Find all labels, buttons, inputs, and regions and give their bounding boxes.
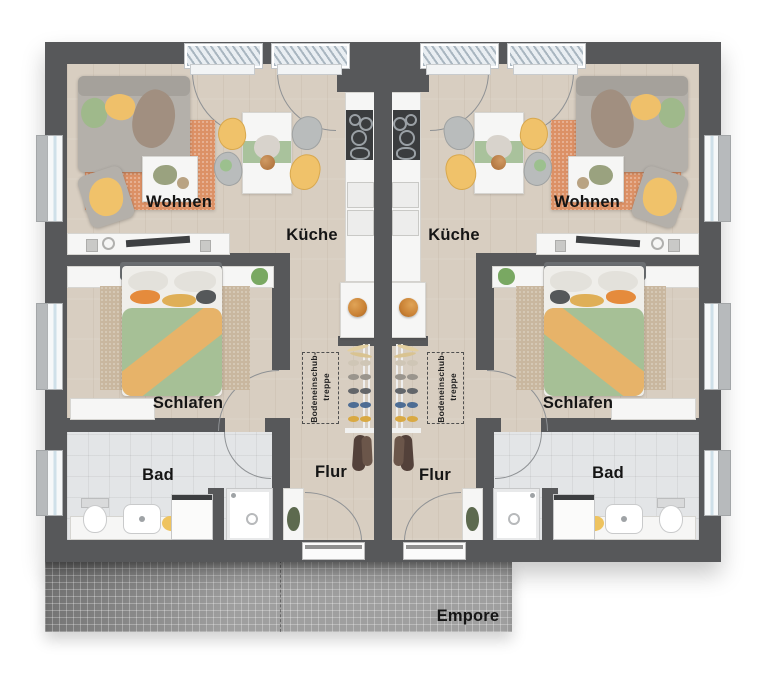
window [47, 135, 63, 222]
faucet [621, 516, 627, 522]
window-sill [718, 303, 731, 390]
decor-object [102, 237, 115, 250]
shoes [360, 388, 371, 394]
tv [126, 236, 190, 247]
double-bed [544, 266, 644, 396]
toilet [659, 505, 683, 533]
toilet [83, 505, 107, 533]
washbasin [605, 504, 643, 534]
shoes [407, 388, 418, 394]
double-bed [122, 266, 222, 396]
entry-door [403, 542, 466, 560]
room-label-flur-right: Flur [405, 466, 465, 485]
kitchen-sink-cabinet [347, 182, 374, 208]
room-label-bad-left: Bad [128, 466, 188, 485]
bedroom-side-wall [272, 253, 290, 370]
hanging-coat [393, 436, 405, 466]
tv-sideboard [536, 233, 699, 255]
loft-ladder-label-left: Bodeneinschub- treppe [302, 352, 337, 422]
entry-door-leaf [305, 545, 362, 549]
pillow [128, 271, 168, 292]
duvet-stripe [122, 308, 222, 396]
roof-window-sill [513, 64, 578, 75]
pillow-mustard [570, 294, 604, 307]
empore-seam-line [280, 560, 281, 632]
shower-drain [246, 513, 258, 525]
pillow-mustard [162, 294, 196, 307]
shoes [348, 402, 359, 408]
duvet-stripe [544, 308, 644, 396]
shoes [407, 360, 418, 366]
entry-deco-panel [283, 488, 304, 540]
pillow [174, 271, 216, 292]
shoes [407, 416, 418, 422]
cushion-green [79, 96, 109, 130]
cushion-green [657, 96, 687, 130]
potted-plant [498, 268, 515, 285]
speaker [200, 240, 211, 252]
loft-ladder-label-line1: Bodeneinschub- [436, 352, 446, 423]
washing-machine [171, 494, 213, 540]
pillow-charcoal [196, 290, 216, 304]
pillow-orange [606, 290, 636, 304]
bathroom-top-wall [541, 418, 699, 432]
room-label-schlafen-right: Schlafen [538, 394, 618, 413]
shoes [360, 416, 371, 422]
window [47, 303, 63, 390]
shoes [360, 402, 371, 408]
entry-plant [466, 507, 479, 531]
decor-mint [219, 158, 234, 173]
closet [70, 398, 155, 420]
shoes [360, 374, 371, 380]
tv [576, 236, 640, 247]
cooktop [346, 110, 373, 160]
roof-window-sill [426, 64, 491, 75]
shoes [395, 416, 406, 422]
shoes [395, 374, 406, 380]
burner-icon [396, 147, 416, 160]
burner-icon [351, 130, 367, 146]
window [47, 450, 63, 516]
table-vase [577, 177, 589, 189]
entry-plant [287, 507, 300, 531]
decor-object [651, 237, 664, 250]
shower-head [231, 493, 236, 498]
duvet [122, 308, 222, 396]
pillow-orange [130, 290, 160, 304]
speaker [86, 239, 98, 252]
burner-icon [399, 130, 415, 146]
pillow [598, 271, 638, 292]
shower [493, 488, 540, 540]
kitchen-sink-cabinet [392, 182, 419, 208]
shoe-shelf [392, 428, 421, 433]
window-sill [718, 450, 731, 516]
burner-icon [393, 117, 407, 131]
room-label-wohnen-left: Wohnen [139, 193, 219, 212]
loft-ladder-label-line2: treppe [448, 373, 458, 401]
room-label-kueche-right: Küche [414, 226, 494, 245]
gallery-label-empore: Empore [428, 607, 508, 626]
shoes [407, 374, 418, 380]
decor-mint [533, 158, 548, 173]
shoe-shelf [345, 428, 374, 433]
shoes [395, 388, 406, 394]
pillow [550, 271, 592, 292]
burner-icon [359, 117, 373, 131]
burner-icon [350, 147, 370, 160]
washer-panel [172, 495, 212, 500]
shoes [348, 388, 359, 394]
dining-table [474, 112, 524, 194]
shoes [348, 374, 359, 380]
speaker [555, 240, 566, 252]
shoes [395, 360, 406, 366]
washbasin [123, 504, 161, 534]
shoes [395, 402, 406, 408]
entry-deco-panel [462, 488, 483, 540]
armchair-blanket [640, 175, 680, 218]
wardrobe [644, 266, 699, 288]
wardrobe [67, 266, 122, 288]
armchair-blanket [86, 175, 126, 218]
shoes [348, 360, 359, 366]
room-label-kueche-left: Küche [272, 226, 352, 245]
loft-ladder-label-line2: treppe [321, 373, 331, 401]
shoes [348, 416, 359, 422]
entry-door [302, 542, 365, 560]
party-wall [374, 42, 392, 540]
loft-ladder-label-line1: Bodeneinschub- [309, 352, 319, 423]
shower-head [530, 493, 535, 498]
table-plant [153, 165, 177, 185]
shower-drain [508, 513, 520, 525]
table-vase [177, 177, 189, 189]
tv-sideboard [67, 233, 230, 255]
shoes [407, 402, 418, 408]
duvet [544, 308, 644, 396]
room-label-wohnen-right: Wohnen [547, 193, 627, 212]
hanging-coat [361, 436, 373, 466]
decor-vase [399, 298, 418, 317]
roof-window-sill [190, 64, 255, 75]
loft-ladder-label-right: Bodeneinschub- treppe [429, 352, 464, 422]
washing-machine [553, 494, 595, 540]
closet [611, 398, 696, 420]
room-label-schlafen-left: Schlafen [148, 394, 228, 413]
entry-door-leaf [406, 545, 463, 549]
sofa-backrest [576, 76, 688, 96]
room-label-bad-right: Bad [578, 464, 638, 483]
table-plant [589, 165, 613, 185]
roof-window-sill [277, 64, 342, 75]
cooktop [393, 110, 420, 160]
speaker [668, 239, 680, 252]
floor-plan-canvas: Wohnen Küche Schlafen Bad Flur Wohnen Kü… [0, 0, 775, 692]
window-sill [718, 135, 731, 222]
faucet [139, 516, 145, 522]
potted-plant [251, 268, 268, 285]
room-label-flur-left: Flur [301, 463, 361, 482]
shoes [360, 360, 371, 366]
copper-bowl [491, 155, 506, 170]
copper-bowl [260, 155, 275, 170]
washer-panel [554, 495, 594, 500]
decor-vase [348, 298, 367, 317]
sofa-backrest [78, 76, 190, 96]
shower [226, 488, 273, 540]
chimney-block [337, 42, 429, 92]
bathroom-top-wall [67, 418, 225, 432]
dining-table [242, 112, 292, 194]
pillow-charcoal [550, 290, 570, 304]
